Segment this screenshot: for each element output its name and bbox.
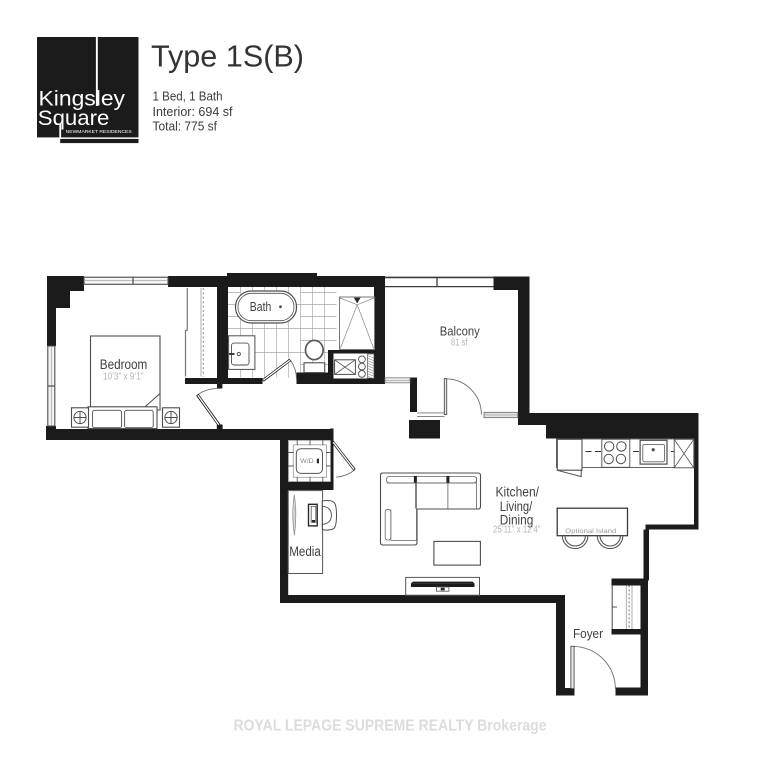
- svg-text:81 sf: 81 sf: [451, 338, 468, 349]
- svg-text:Interior: 694 sf: Interior: 694 sf: [153, 104, 233, 119]
- svg-text:Optional Island: Optional Island: [565, 529, 616, 535]
- svg-text:25’11” x 12’4”: 25’11” x 12’4”: [493, 525, 541, 536]
- svg-text:W/D: W/D: [300, 458, 314, 465]
- svg-text:ROYAL LEPAGE SUPREME REALTY B: ROYAL LEPAGE SUPREME REALTY Brokerage: [234, 718, 547, 735]
- svg-text:1 Bed, 1 Bath: 1 Bed, 1 Bath: [153, 89, 223, 104]
- svg-text:Media: Media: [289, 544, 321, 559]
- svg-text:Total: 775 sf: Total: 775 sf: [153, 118, 218, 133]
- svg-text:Type 1S(B): Type 1S(B): [151, 39, 304, 74]
- svg-text:NEWMARKET RESIDENCES: NEWMARKET RESIDENCES: [66, 129, 132, 134]
- svg-text:Bedroom: Bedroom: [100, 357, 148, 372]
- svg-text:Square: Square: [38, 106, 110, 130]
- svg-text:Kitchen/: Kitchen/: [496, 484, 540, 499]
- svg-text:Balcony: Balcony: [440, 323, 480, 338]
- svg-text:10’3” x 9’1”: 10’3” x 9’1”: [103, 372, 144, 383]
- svg-text:Bath: Bath: [250, 300, 272, 314]
- svg-text:Foyer: Foyer: [573, 626, 604, 641]
